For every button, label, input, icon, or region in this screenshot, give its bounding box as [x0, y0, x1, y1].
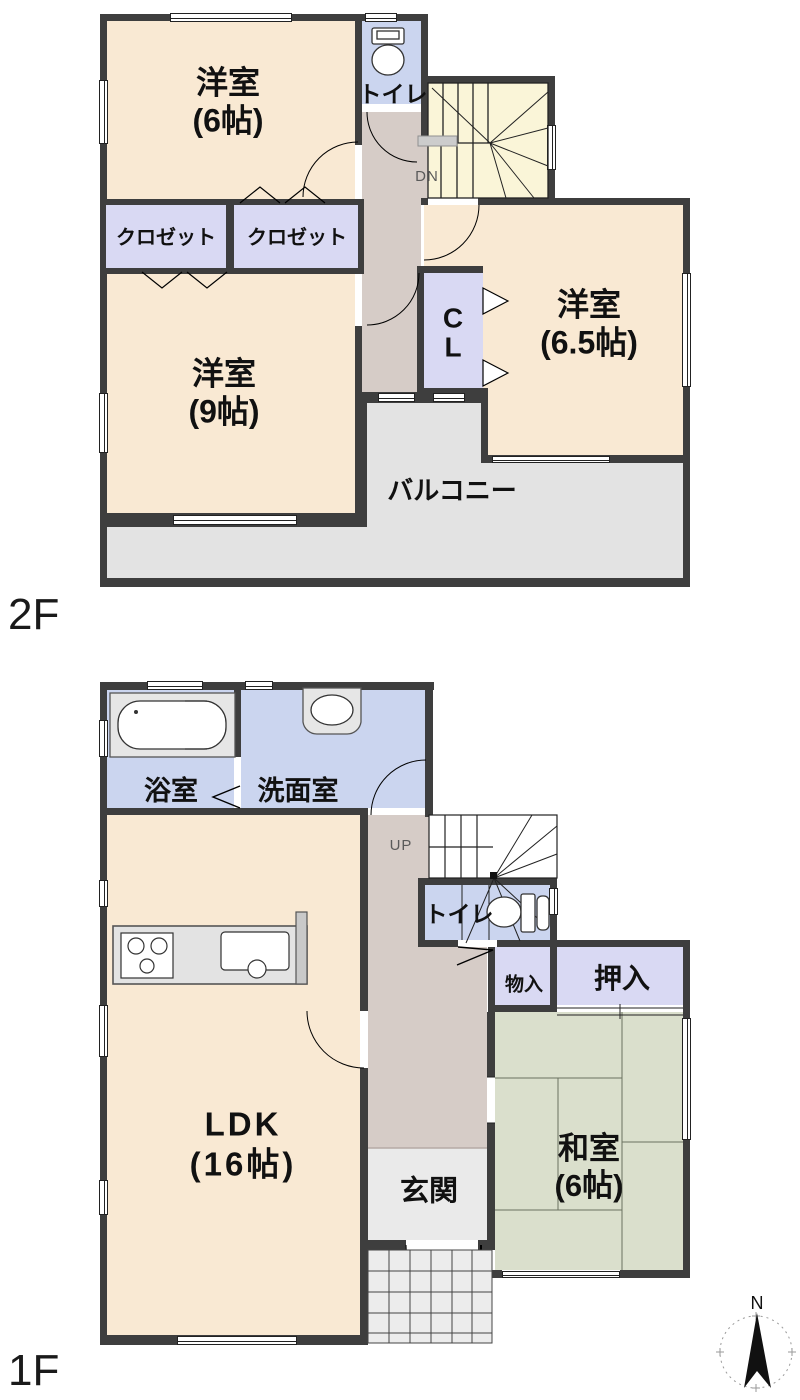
room-label-oshiire: 押入 — [594, 962, 650, 996]
compass-icon — [716, 1312, 796, 1392]
compass-north-label: N — [751, 1293, 764, 1315]
room-label-toilet-2f: トイレ — [359, 81, 428, 109]
floorplan-canvas: 洋室 (6帖) トイレ クロゼット クロゼット 洋室 (9帖) C L 洋室 (… — [0, 0, 800, 1400]
room-label-closet-right: クロゼット — [247, 226, 347, 250]
stair-node — [490, 872, 497, 879]
stairs-direction-1f: UP — [390, 837, 413, 855]
room-label-bath: 浴室 — [144, 775, 198, 807]
room-label-washitsu: 和室 (6帖) — [555, 1130, 624, 1204]
room-label-closet-left: クロゼット — [116, 226, 216, 250]
room-label-toilet-1f: トイレ — [425, 901, 494, 929]
cl-door-marks — [483, 288, 508, 386]
room-label-cl: C L — [443, 304, 463, 363]
room-label-storage: 物入 — [505, 975, 543, 998]
fusuma-lines — [487, 1004, 683, 1123]
entrance-porch — [368, 1250, 492, 1343]
room-label-ldk: LDK (16帖) — [190, 1104, 297, 1183]
kitchen-counter-icon — [113, 912, 307, 984]
washbasin-icon — [303, 688, 361, 734]
room-label-balcony: バルコニー — [387, 475, 516, 506]
room-label-genkan: 玄関 — [400, 1175, 458, 1210]
floor-label-1f: 1F — [8, 1346, 59, 1396]
stairs-direction-2f: DN — [415, 168, 439, 186]
room-label-western-65: 洋室 (6.5帖) — [540, 286, 638, 363]
stair-step-marker — [418, 136, 457, 146]
toilet-icon-2f — [372, 28, 404, 75]
bathtub-icon — [110, 693, 235, 757]
room-label-western-9: 洋室 (9帖) — [188, 355, 259, 432]
room-label-western-6: 洋室 (6帖) — [192, 64, 263, 141]
floor-label-2f: 2F — [8, 590, 59, 640]
room-label-washroom: 洗面室 — [258, 775, 339, 807]
